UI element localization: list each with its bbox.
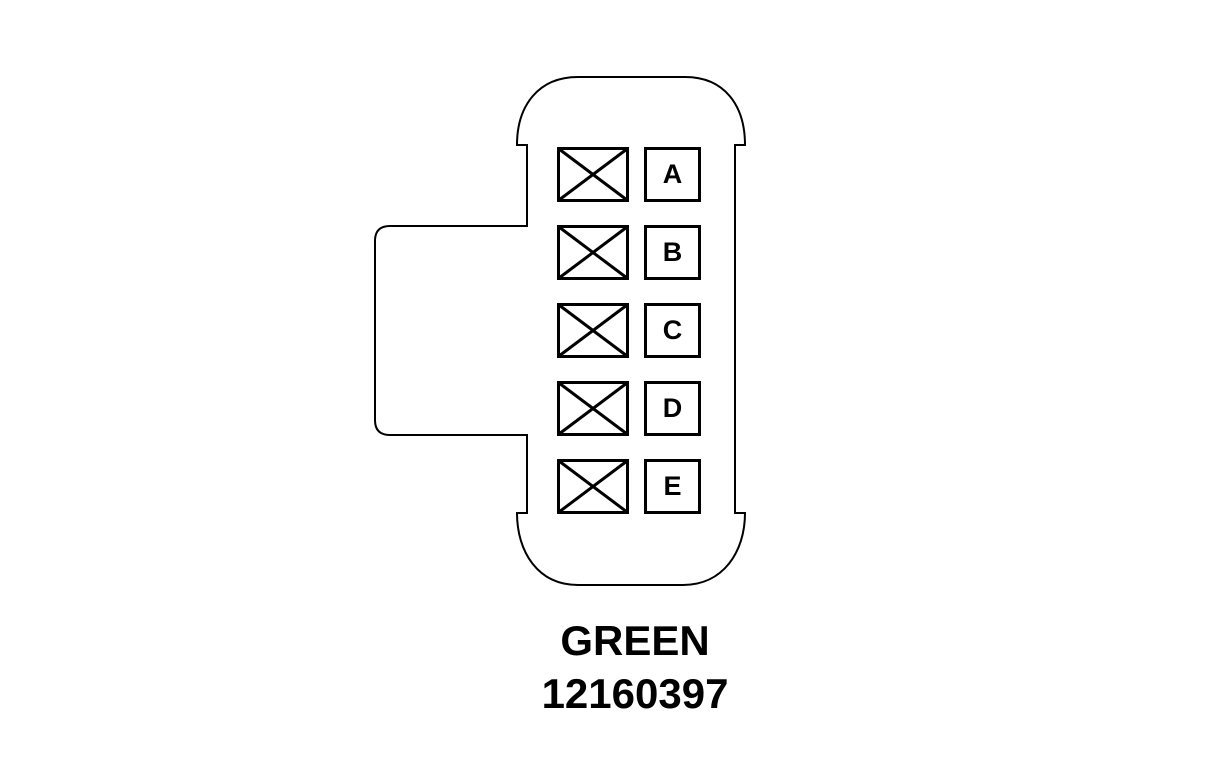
- pin-row-b: B: [557, 225, 701, 280]
- pin-row-e: E: [557, 459, 701, 514]
- blocked-cavity-icon: [557, 225, 629, 280]
- connector-color-label: GREEN: [455, 620, 815, 662]
- blocked-cavity-icon: [557, 303, 629, 358]
- blocked-cavity-icon: [557, 459, 629, 514]
- blocked-cavity-icon: [557, 147, 629, 202]
- pin-cavity-label: C: [644, 303, 701, 358]
- pin-cavity-label: B: [644, 225, 701, 280]
- pin-cavity-label: A: [644, 147, 701, 202]
- connector-part-number: 12160397: [455, 673, 815, 715]
- pin-row-c: C: [557, 303, 701, 358]
- connector-diagram: A B C D: [0, 0, 1223, 774]
- blocked-cavity-icon: [557, 381, 629, 436]
- pin-cavity-label: D: [644, 381, 701, 436]
- pin-cavity-label: E: [644, 459, 701, 514]
- pin-row-d: D: [557, 381, 701, 436]
- pin-row-a: A: [557, 147, 701, 202]
